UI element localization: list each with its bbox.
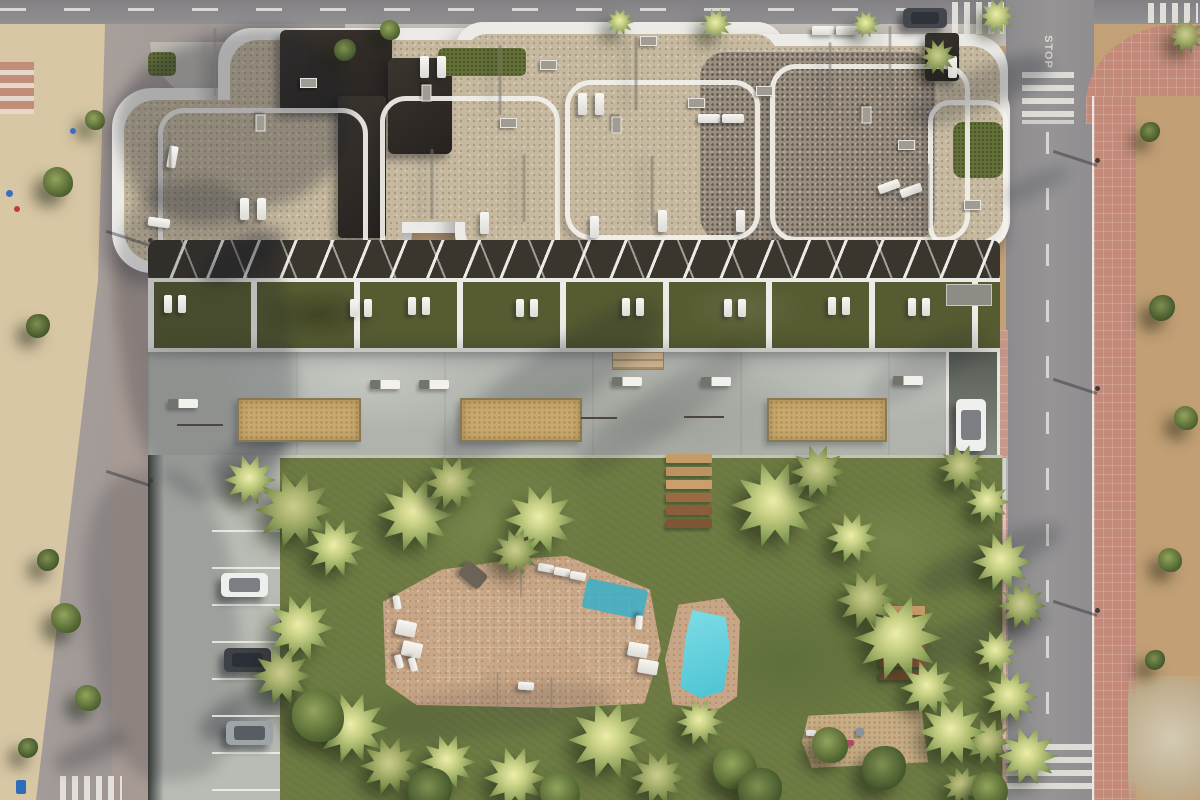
palm-tree (998, 582, 1046, 630)
street-object (6, 190, 13, 197)
court-marker (581, 417, 617, 419)
palm-tree (826, 512, 878, 564)
parking-stall-line (212, 567, 280, 569)
bush (380, 20, 400, 40)
bush (540, 772, 580, 800)
sun-lounger (922, 298, 930, 316)
bush (26, 314, 50, 338)
palm-tree (1168, 18, 1200, 54)
tree-crown (292, 690, 344, 742)
tree-crown (836, 570, 896, 630)
court-marker (684, 416, 724, 418)
parking-stall-line (212, 789, 280, 791)
sun-lounger (812, 26, 834, 35)
tree-crown (630, 750, 686, 800)
palm-tree (424, 455, 480, 511)
wooden-plank (666, 506, 712, 515)
bush (51, 603, 81, 633)
wooden-plank (666, 519, 712, 528)
tree-crown (85, 110, 105, 130)
rooftop-vent (612, 117, 622, 134)
tree-crown (852, 10, 880, 38)
tree-crown (862, 746, 906, 790)
sun-lounger (590, 216, 599, 238)
palm-tree (974, 630, 1018, 674)
sun-lounger (420, 56, 429, 78)
rooftop-vent (688, 98, 705, 108)
rubble-patch (1128, 676, 1200, 800)
bench (612, 377, 642, 386)
tree-crown (1149, 295, 1175, 321)
tree-crown (790, 444, 846, 500)
rooftop-vent (540, 60, 557, 70)
car (226, 721, 273, 745)
sun-lounger (722, 114, 744, 123)
palm-tree (630, 750, 686, 800)
tree-crown (483, 746, 547, 800)
sun-lounger (240, 198, 249, 220)
tree-crown (75, 685, 101, 711)
street-lamp (148, 478, 153, 483)
rooftop-vent (256, 115, 266, 132)
bush (1145, 650, 1165, 670)
tree-crown (812, 727, 848, 763)
palm-tree (790, 444, 846, 500)
sun-lounger (350, 299, 358, 317)
sun-lounger (595, 93, 604, 115)
petanque-court (460, 398, 582, 442)
rooftop-vent (500, 118, 517, 128)
tree-crown (979, 0, 1015, 34)
sun-lounger (422, 297, 430, 315)
cast-shadow (148, 344, 1006, 358)
sun-lounger (257, 198, 266, 220)
street-lamp (1095, 608, 1100, 613)
palm-tree (979, 0, 1015, 34)
sun-lounger (364, 299, 372, 317)
sun-lounger (622, 298, 630, 316)
tree-crown (51, 603, 81, 633)
aerial-render: STOP (0, 0, 1200, 800)
sun-lounger (636, 298, 644, 316)
red-crosswalk (0, 62, 34, 114)
bush (972, 772, 1008, 800)
street-bin (16, 780, 26, 794)
petanque-court (237, 398, 361, 442)
wooden-plank (666, 480, 712, 489)
palm-tree (920, 39, 956, 75)
tree-crown (540, 772, 580, 800)
sun-lounger (828, 297, 836, 315)
street-object (14, 206, 20, 212)
tree-crown (606, 8, 634, 36)
sun-lounger (578, 93, 587, 115)
tree-crown (972, 772, 1008, 800)
bush (18, 738, 38, 758)
outdoor-kitchen (946, 284, 992, 306)
tree-crown (920, 39, 956, 75)
sun-lounger (480, 212, 489, 234)
tree-crown (918, 698, 986, 766)
bush (1158, 548, 1182, 572)
tree-crown (1158, 548, 1182, 572)
tree-crown (700, 8, 732, 40)
wooden-plank (666, 454, 712, 463)
palm-tree (483, 746, 547, 800)
palm-tree (836, 570, 896, 630)
bush (85, 110, 105, 130)
street-lamp (1095, 158, 1100, 163)
tree-crown (1168, 18, 1200, 54)
sun-lounger (164, 295, 172, 313)
bush (292, 690, 344, 742)
street-lamp (1095, 386, 1100, 391)
bush (738, 768, 782, 800)
sun-lounger (698, 114, 720, 123)
sun-lounger (437, 56, 446, 78)
bush (334, 39, 356, 61)
bush (1140, 122, 1160, 142)
rooftop-vent (964, 200, 981, 210)
lane-divider-dashed (1046, 132, 1049, 732)
tree-crown (334, 39, 356, 61)
rooftop-vent (756, 86, 773, 96)
sun-lounger (908, 298, 916, 316)
tree-crown (26, 314, 50, 338)
bush (1174, 406, 1198, 430)
palm-tree (492, 528, 540, 576)
tree-crown (380, 20, 400, 40)
tree-crown (1174, 406, 1198, 430)
palm-tree (982, 669, 1038, 725)
street-object (70, 128, 76, 134)
tree-crown (998, 582, 1046, 630)
sun-lounger (530, 299, 538, 317)
rooftop-vent (300, 78, 317, 88)
palm-tree (918, 698, 986, 766)
tree-crown (974, 630, 1018, 674)
rooftop-vent (898, 140, 915, 150)
tree-crown (43, 167, 73, 197)
parking-stall-line (212, 715, 280, 717)
crosswalk (60, 776, 122, 800)
play-equipment (856, 728, 864, 736)
tree-crown (676, 698, 724, 746)
bench (701, 377, 731, 386)
petanque-court (767, 398, 887, 442)
bush (408, 768, 452, 800)
tree-crown (408, 768, 452, 800)
sun-lounger (635, 615, 643, 630)
lane-divider-dashed (0, 8, 940, 11)
car (903, 8, 947, 28)
sun-lounger (736, 210, 745, 232)
bench (168, 399, 198, 408)
sun-lounger (724, 299, 732, 317)
sun-lounger (842, 297, 850, 315)
bush (812, 727, 848, 763)
garden-curb (280, 455, 1002, 458)
sun-lounger (408, 297, 416, 315)
palm-tree (676, 698, 724, 746)
bush (37, 549, 59, 571)
stop-line (1022, 120, 1074, 124)
bush (43, 167, 73, 197)
parking-stall-line (212, 752, 280, 754)
court-marker (177, 424, 223, 426)
street-lamp (148, 238, 153, 243)
tree-crown (1140, 122, 1160, 142)
rooftop-vent (422, 85, 432, 102)
palm-tree (606, 8, 634, 36)
wooden-plank (666, 493, 712, 502)
tree-crown (1145, 650, 1165, 670)
bush (1149, 295, 1175, 321)
sun-lounger (178, 295, 186, 313)
tree-crown (966, 480, 1010, 524)
bench (419, 380, 449, 389)
tree-crown (826, 512, 878, 564)
car (221, 573, 268, 597)
tree-crown (982, 669, 1038, 725)
tree-crown (492, 528, 540, 576)
bush (862, 746, 906, 790)
tree-crown (424, 455, 480, 511)
sun-lounger (518, 681, 535, 690)
palm-tree (852, 10, 880, 38)
tree-crown (305, 518, 365, 578)
tree-crown (738, 768, 782, 800)
tree-crown (37, 549, 59, 571)
palm-tree (305, 518, 365, 578)
bench (893, 376, 923, 385)
sun-lounger (516, 299, 524, 317)
bush (75, 685, 101, 711)
rooftop-vent (862, 107, 872, 124)
wooden-plank (666, 467, 712, 476)
tree-crown (18, 738, 38, 758)
sun-lounger (738, 299, 746, 317)
palm-tree (966, 480, 1010, 524)
bench (370, 380, 400, 389)
palm-tree (700, 8, 732, 40)
